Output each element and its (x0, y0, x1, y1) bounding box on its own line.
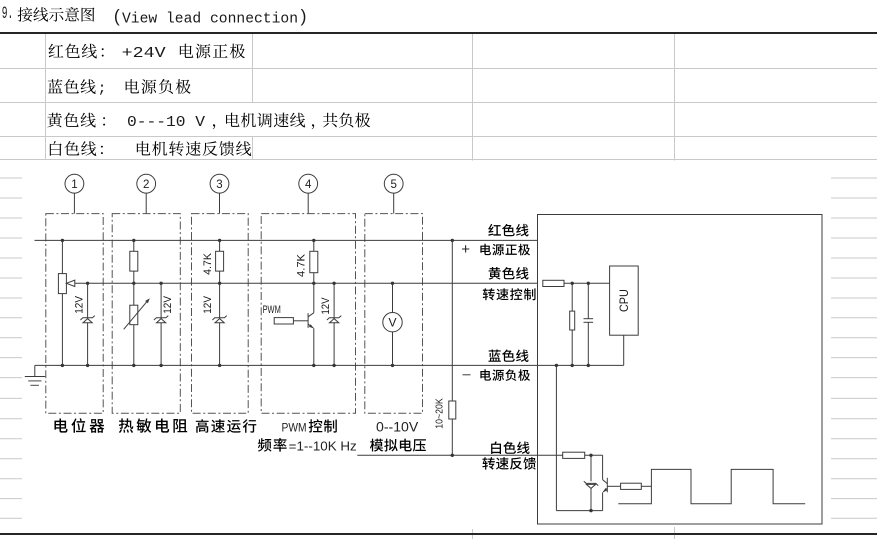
svg-text:2: 2 (143, 179, 149, 191)
svg-text:4: 4 (305, 179, 312, 191)
svg-text:3: 3 (216, 179, 222, 191)
svg-text:4.7K: 4.7K (295, 253, 307, 277)
svg-text:12V: 12V (202, 295, 214, 313)
svg-text:): ) (301, 6, 307, 26)
svg-text:9.: 9. (2, 4, 14, 24)
svg-text:0--10V: 0--10V (376, 420, 418, 435)
svg-text:5: 5 (390, 179, 396, 191)
svg-text:=1--10K Hz: =1--10K Hz (289, 439, 357, 453)
svg-text:PWM: PWM (263, 304, 281, 316)
svg-text:0---10 V: 0---10 V (127, 114, 205, 131)
svg-text:CPU: CPU (619, 289, 631, 312)
svg-text:4.7K: 4.7K (202, 252, 214, 274)
svg-text:PWM: PWM (282, 421, 307, 435)
svg-text:;: ; (98, 80, 107, 97)
svg-text:V: V (388, 316, 396, 330)
svg-text:12V: 12V (162, 295, 174, 313)
svg-text:10~20K: 10~20K (434, 398, 446, 429)
svg-text:View lead connection: View lead connection (122, 10, 298, 27)
svg-text:12V: 12V (320, 297, 332, 315)
svg-text:(: ( (114, 6, 120, 26)
svg-text:+24V: +24V (122, 45, 166, 62)
svg-text:1: 1 (71, 179, 77, 191)
svg-text:12V: 12V (73, 295, 85, 313)
svg-text:+: + (461, 241, 470, 258)
